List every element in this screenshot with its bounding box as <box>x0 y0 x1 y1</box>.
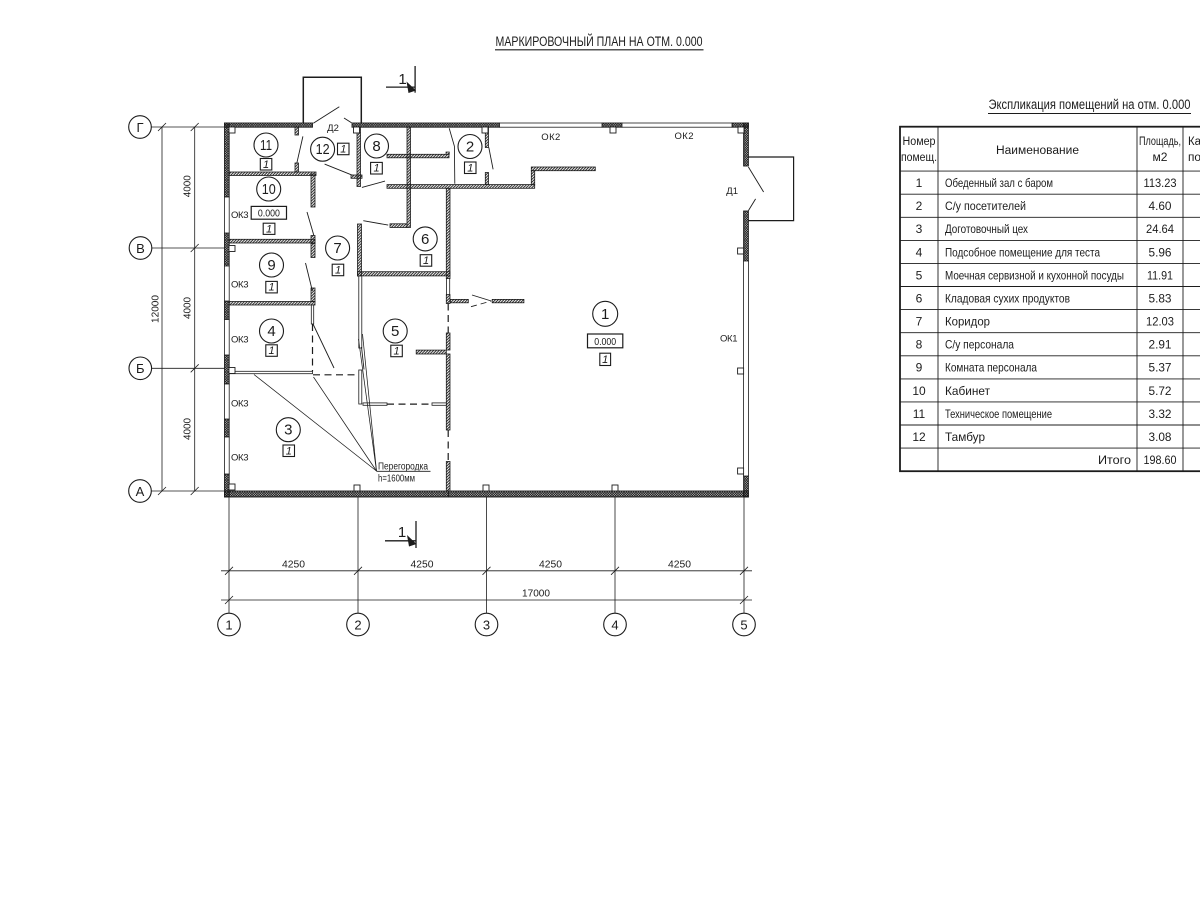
svg-text:8: 8 <box>916 338 923 352</box>
svg-text:Тамбур: Тамбур <box>945 430 985 444</box>
svg-text:7: 7 <box>916 315 923 329</box>
svg-text:Техническое помещение: Техническое помещение <box>945 407 1052 421</box>
svg-text:3: 3 <box>284 422 292 439</box>
svg-text:11.91: 11.91 <box>1147 268 1173 282</box>
svg-text:9: 9 <box>267 257 275 274</box>
svg-text:1: 1 <box>266 223 272 235</box>
svg-text:4250: 4250 <box>411 559 434 570</box>
svg-text:4000: 4000 <box>183 418 194 440</box>
svg-text:ОК2: ОК2 <box>675 131 694 142</box>
svg-text:2.91: 2.91 <box>1149 338 1172 352</box>
svg-text:2: 2 <box>354 617 361 632</box>
svg-text:Номер: Номер <box>903 136 936 148</box>
svg-text:4000: 4000 <box>183 297 194 319</box>
svg-text:2: 2 <box>916 199 923 213</box>
svg-text:4250: 4250 <box>668 559 691 570</box>
svg-text:ОК3: ОК3 <box>231 335 249 346</box>
svg-text:5.96: 5.96 <box>1149 245 1172 259</box>
svg-text:1: 1 <box>423 255 429 267</box>
svg-text:1: 1 <box>373 163 379 175</box>
svg-text:Площадь,: Площадь, <box>1139 136 1181 148</box>
svg-text:Наименование: Наименование <box>996 145 1079 157</box>
svg-text:5.37: 5.37 <box>1149 361 1172 375</box>
svg-text:4: 4 <box>267 323 275 340</box>
svg-text:0.000: 0.000 <box>258 208 280 219</box>
svg-text:1: 1 <box>393 346 399 358</box>
svg-text:1: 1 <box>340 144 346 156</box>
svg-text:Комната персонала: Комната персонала <box>945 361 1037 375</box>
svg-text:Моечная сервизной и кухонной п: Моечная сервизной и кухонной посуды <box>945 268 1124 282</box>
svg-text:5: 5 <box>740 617 747 632</box>
svg-text:198.60: 198.60 <box>1144 453 1177 467</box>
svg-text:ОК3: ОК3 <box>231 210 249 221</box>
svg-text:11: 11 <box>913 407 926 421</box>
svg-text:10: 10 <box>262 181 276 198</box>
svg-text:В: В <box>136 241 145 256</box>
svg-text:4: 4 <box>916 245 923 259</box>
svg-text:4.60: 4.60 <box>1149 199 1172 213</box>
svg-text:помещ.: помещ. <box>901 152 937 164</box>
svg-text:Доготовочный цех: Доготовочный цех <box>945 222 1028 236</box>
svg-text:113.23: 113.23 <box>1144 176 1177 190</box>
svg-text:5.72: 5.72 <box>1149 384 1172 398</box>
svg-text:11: 11 <box>260 137 272 154</box>
svg-text:1: 1 <box>398 524 406 541</box>
svg-text:3: 3 <box>916 222 923 236</box>
svg-text:24.64: 24.64 <box>1146 222 1174 236</box>
svg-text:1: 1 <box>286 445 292 457</box>
svg-text:С/у персонала: С/у персонала <box>945 338 1014 352</box>
svg-text:Г: Г <box>136 120 143 135</box>
svg-text:4250: 4250 <box>282 559 305 570</box>
svg-text:1: 1 <box>335 265 341 277</box>
svg-text:4000: 4000 <box>183 175 194 197</box>
svg-text:Ка: Ка <box>1188 136 1200 148</box>
svg-text:А: А <box>136 484 145 499</box>
svg-text:ОК1: ОК1 <box>720 334 738 345</box>
svg-text:1: 1 <box>268 345 274 357</box>
svg-text:5: 5 <box>916 268 923 282</box>
svg-text:10: 10 <box>912 384 926 398</box>
svg-text:3.32: 3.32 <box>1149 407 1172 421</box>
svg-text:Д1: Д1 <box>726 186 738 197</box>
svg-text:Коридор: Коридор <box>945 315 990 329</box>
svg-text:5: 5 <box>391 323 399 340</box>
svg-text:ОК2: ОК2 <box>541 132 560 143</box>
svg-text:Перегородка: Перегородка <box>378 462 428 473</box>
svg-text:1: 1 <box>398 71 406 88</box>
svg-text:МАРКИРОВОЧНЫЙ ПЛАН НА ОТМ. 0.0: МАРКИРОВОЧНЫЙ ПЛАН НА ОТМ. 0.000 <box>496 34 703 49</box>
svg-text:1: 1 <box>225 617 232 632</box>
svg-text:0.000: 0.000 <box>594 337 616 348</box>
svg-text:h=1600мм: h=1600мм <box>378 474 415 485</box>
svg-text:7: 7 <box>333 240 341 257</box>
svg-text:12: 12 <box>912 430 926 444</box>
svg-text:по: по <box>1188 152 1200 164</box>
svg-text:9: 9 <box>916 361 923 375</box>
svg-text:1: 1 <box>263 159 269 171</box>
svg-text:1: 1 <box>602 354 608 366</box>
svg-text:5.83: 5.83 <box>1149 291 1172 305</box>
svg-text:4: 4 <box>611 617 618 632</box>
svg-text:Итого: Итого <box>1098 453 1131 467</box>
svg-text:Кладовая сухих продуктов: Кладовая сухих продуктов <box>945 291 1070 305</box>
svg-text:3: 3 <box>483 617 490 632</box>
svg-text:Кабинет: Кабинет <box>945 384 990 398</box>
svg-text:Экспликация помещений на отм.: Экспликация помещений на отм. 0.000 <box>989 97 1191 112</box>
svg-text:ОК3: ОК3 <box>231 279 249 290</box>
svg-text:1: 1 <box>268 282 274 294</box>
svg-text:6: 6 <box>421 231 429 248</box>
svg-text:6: 6 <box>916 291 923 305</box>
svg-text:8: 8 <box>372 138 380 155</box>
svg-text:12000: 12000 <box>151 295 162 323</box>
svg-text:3.08: 3.08 <box>1149 430 1172 444</box>
svg-text:12: 12 <box>316 141 330 158</box>
svg-text:Б: Б <box>136 361 145 376</box>
svg-text:17000: 17000 <box>522 589 550 600</box>
svg-text:12.03: 12.03 <box>1146 315 1174 329</box>
svg-text:ОК3: ОК3 <box>231 399 249 410</box>
svg-text:м2: м2 <box>1153 152 1168 164</box>
svg-text:Д2: Д2 <box>327 123 339 134</box>
svg-text:1: 1 <box>601 306 609 323</box>
svg-text:1: 1 <box>916 176 923 190</box>
svg-text:ОК3: ОК3 <box>231 453 249 464</box>
svg-text:Обеденный зал с баром: Обеденный зал с баром <box>945 176 1053 190</box>
svg-text:Подсобное помещение для теста: Подсобное помещение для теста <box>945 245 1100 259</box>
svg-text:1: 1 <box>467 162 473 174</box>
svg-text:4250: 4250 <box>539 559 562 570</box>
svg-text:С/у посетителей: С/у посетителей <box>945 199 1026 213</box>
svg-text:2: 2 <box>466 139 474 156</box>
